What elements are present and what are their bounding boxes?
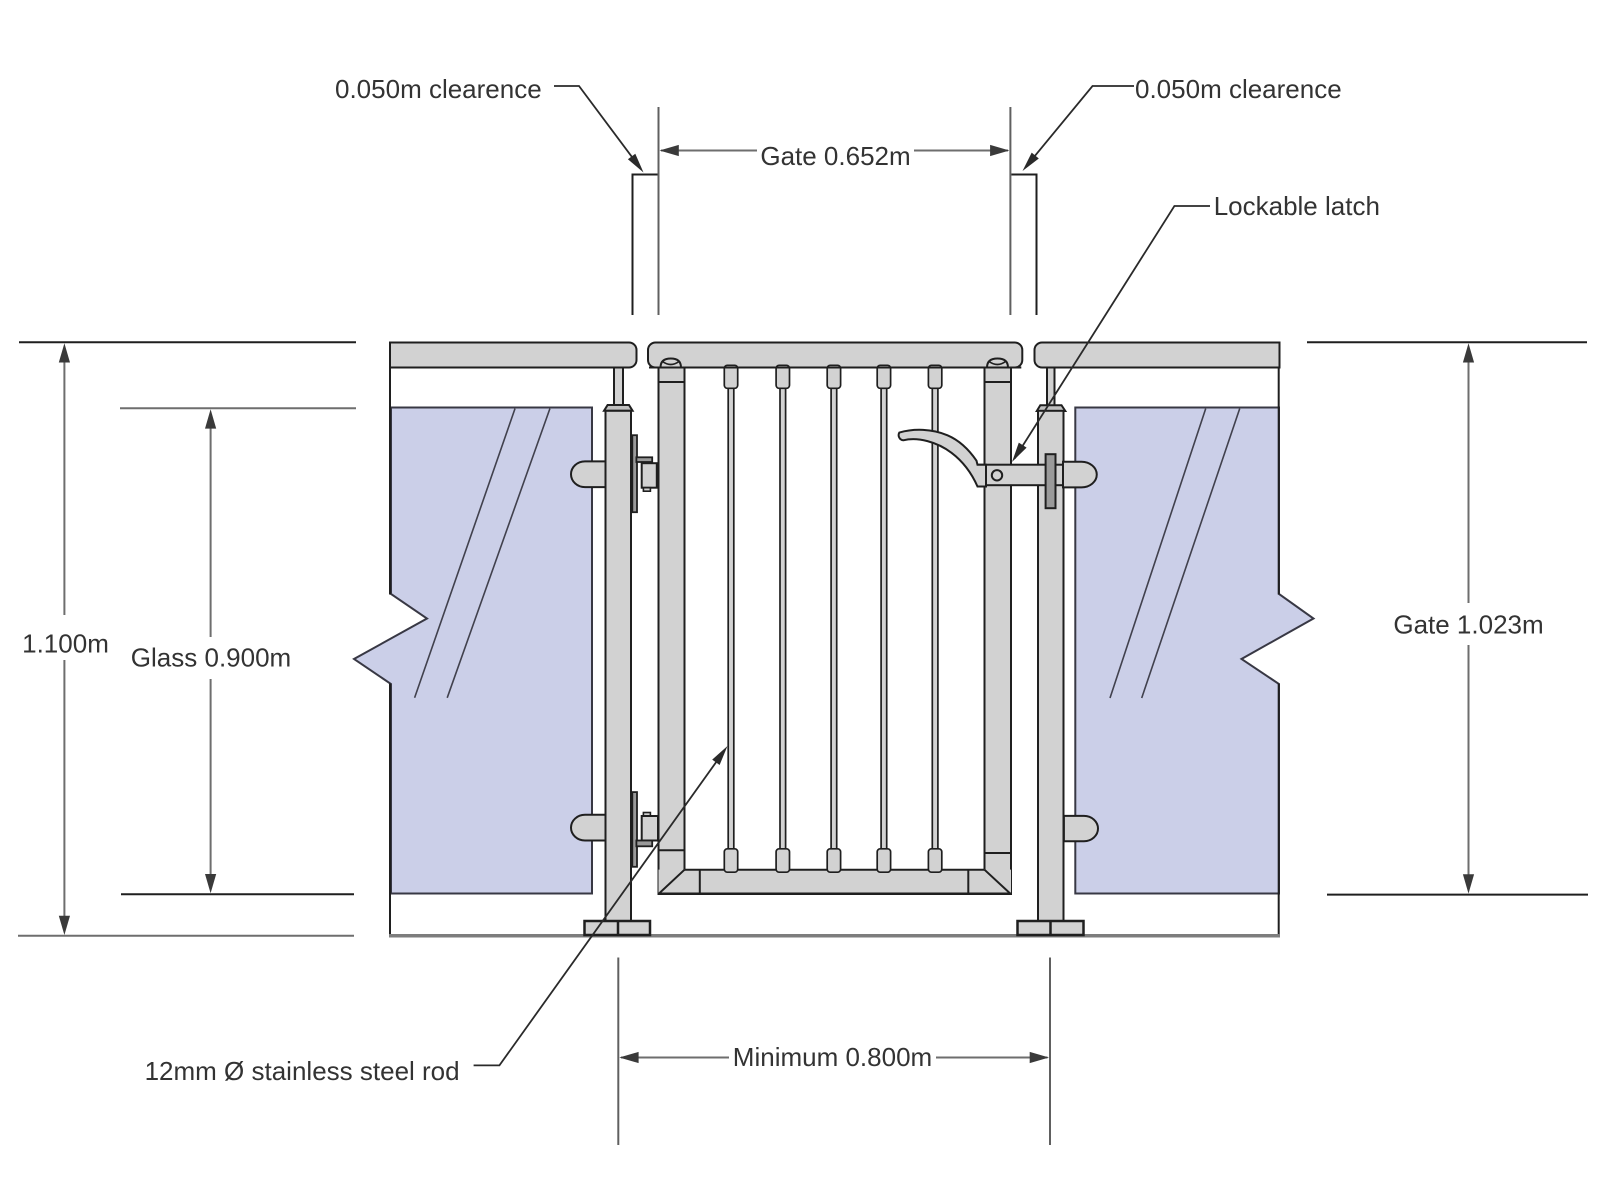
svg-text:1.100m: 1.100m xyxy=(22,629,109,659)
svg-text:12mm Ø stainless steel rod: 12mm Ø stainless steel rod xyxy=(145,1056,460,1086)
svg-text:0.050m clearence: 0.050m clearence xyxy=(1135,74,1342,104)
svg-text:Minimum 0.800m: Minimum 0.800m xyxy=(733,1042,932,1072)
svg-text:Lockable latch: Lockable latch xyxy=(1214,191,1380,221)
svg-text:0.050m clearence: 0.050m clearence xyxy=(335,74,542,104)
svg-text:Gate 1.023m: Gate 1.023m xyxy=(1393,610,1543,640)
svg-text:Gate 0.652m: Gate 0.652m xyxy=(760,141,910,171)
svg-text:Glass 0.900m: Glass 0.900m xyxy=(131,643,291,673)
